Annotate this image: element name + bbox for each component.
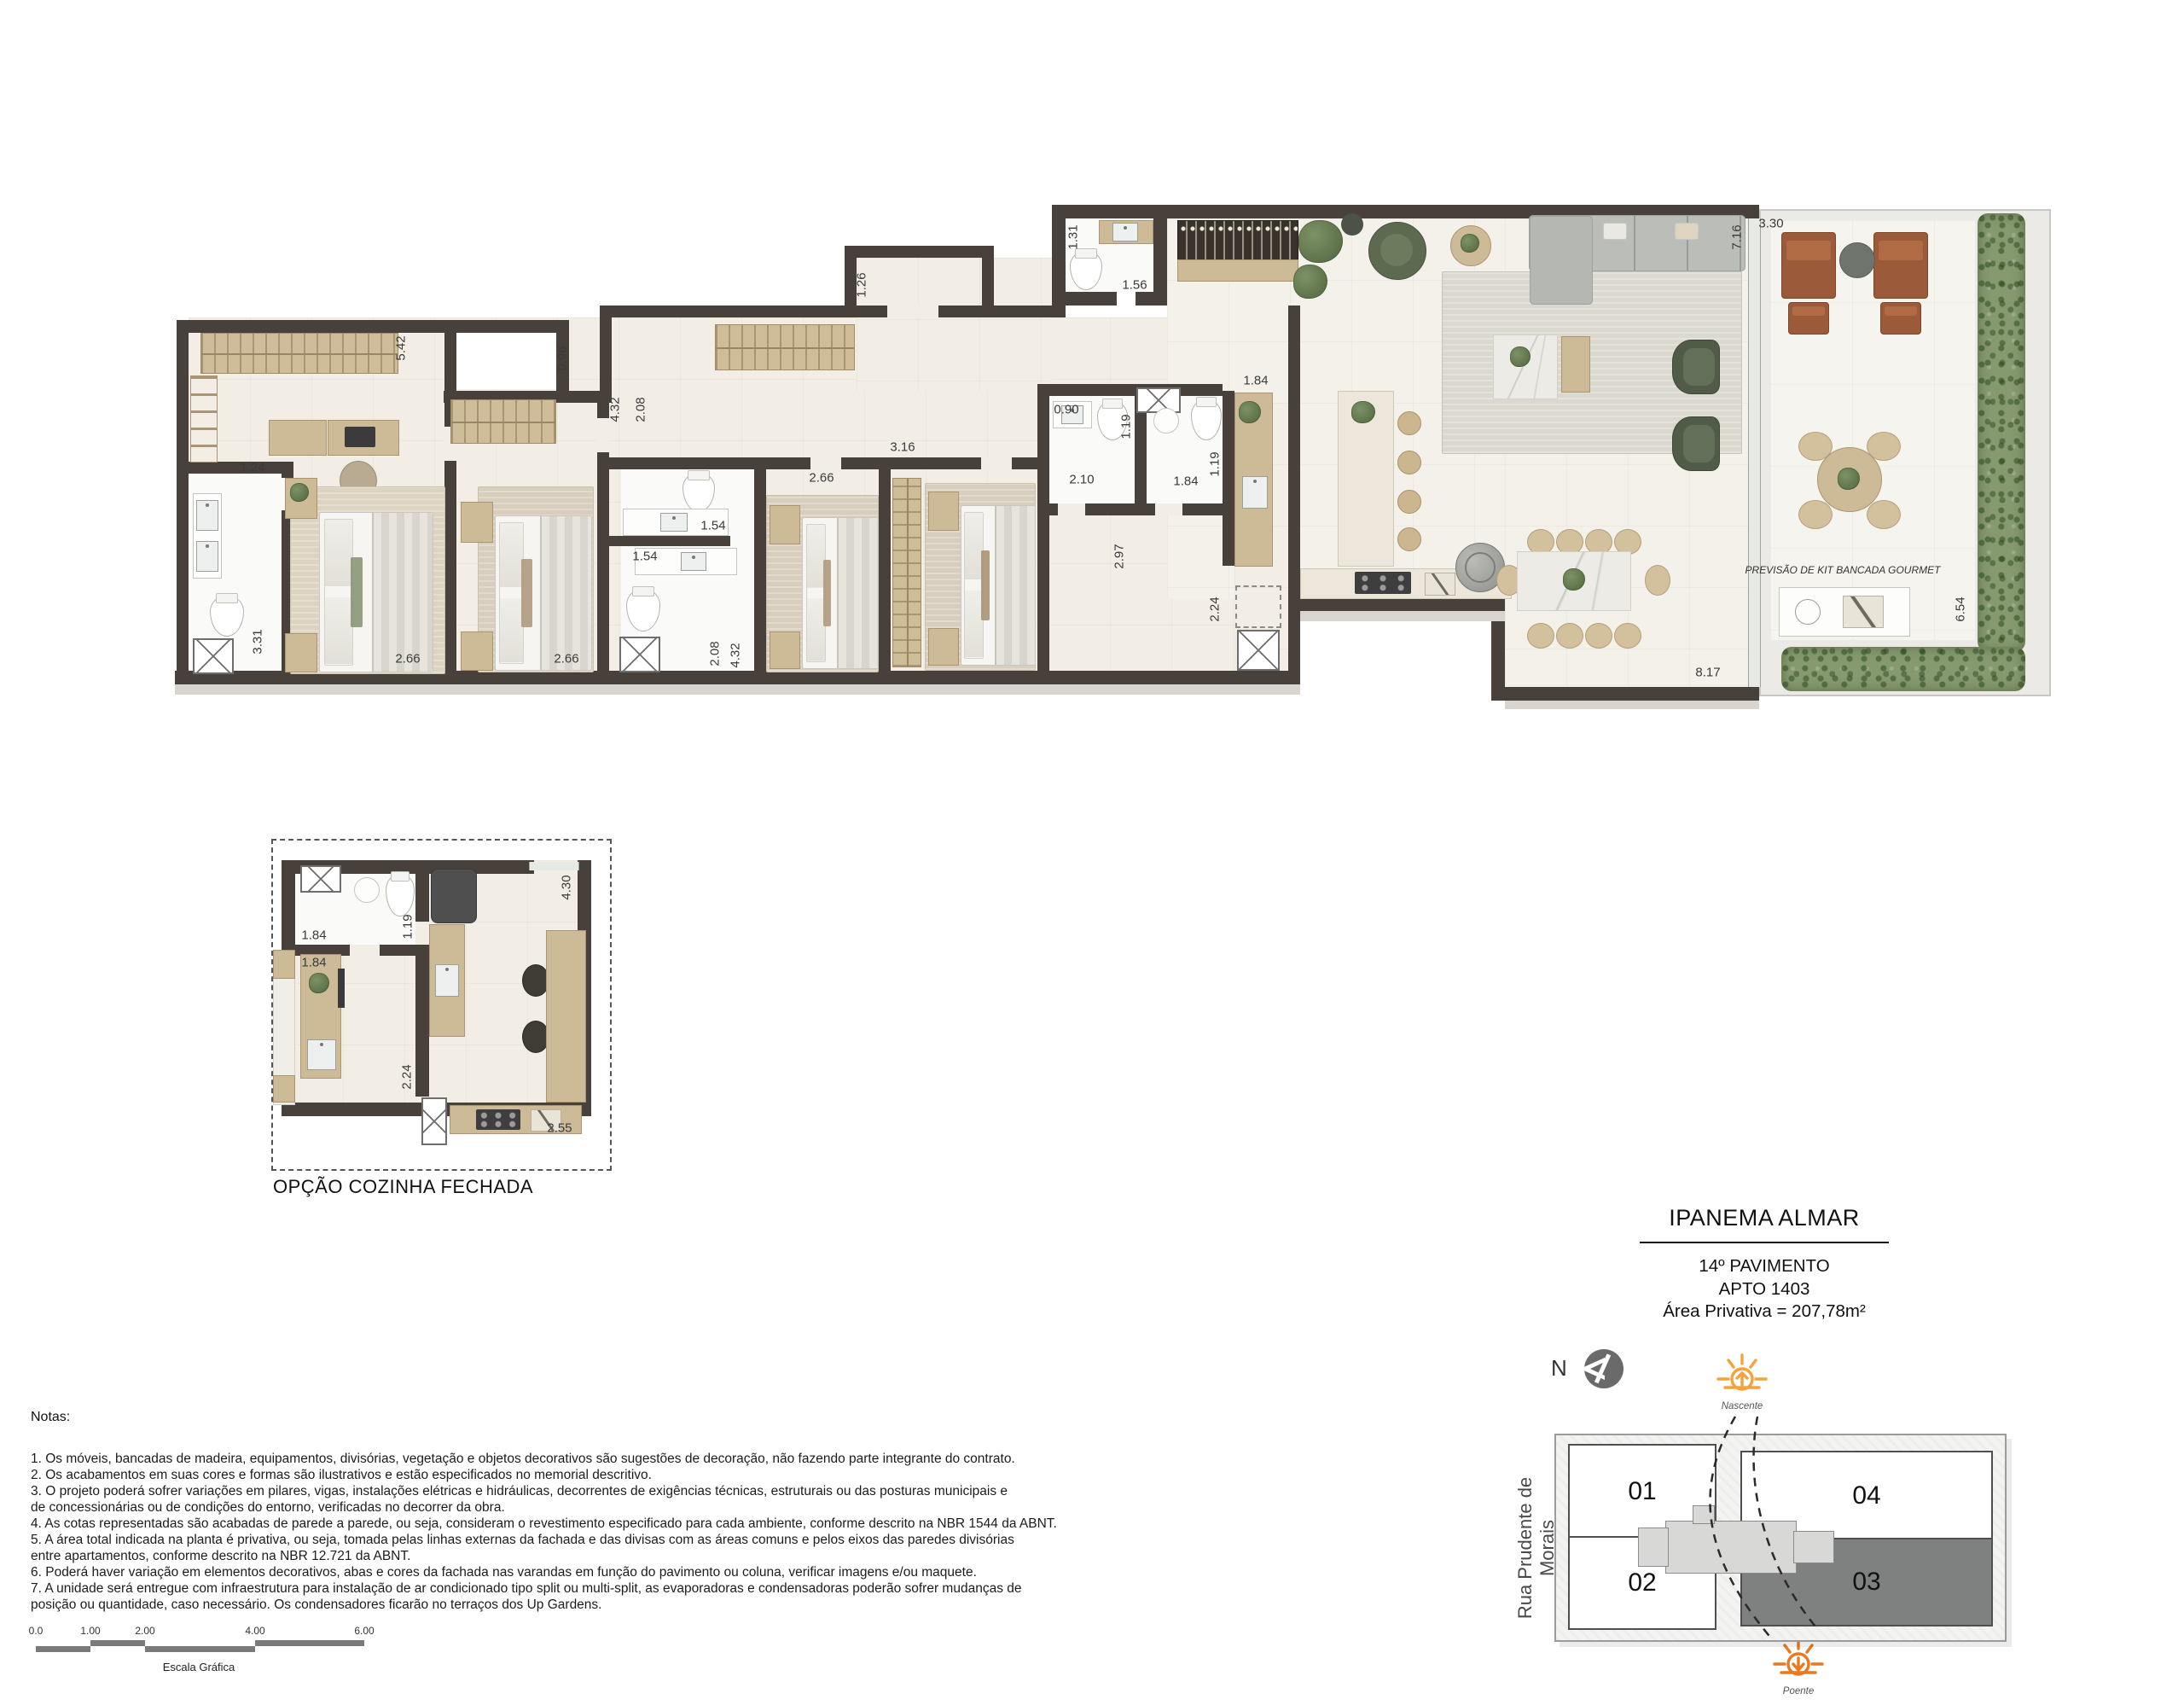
area-label: Área Privativa = 207,78m² (1594, 1301, 1935, 1324)
scale-tick-label: 2.00 (135, 1625, 154, 1637)
scale-segment (90, 1640, 145, 1646)
notes-heading: Notas: (31, 1410, 1174, 1425)
floor-label: 14º PAVIMENTO (1594, 1255, 1935, 1278)
dimension-label: 1.19 (402, 914, 415, 939)
key-plan-core (1793, 1531, 1834, 1563)
pillow-accent (351, 557, 363, 627)
pillow-accent (981, 550, 989, 620)
option-caption: OPÇÃO COZINHA FECHADA (273, 1176, 533, 1198)
dimension-label: 4.32 (729, 643, 742, 667)
key-plan-core (1638, 1528, 1669, 1567)
note-line: 4. As cotas representadas são acabadas d… (31, 1516, 1174, 1532)
notes-lines: 1. Os móveis, bancadas de madeira, equip… (31, 1451, 1174, 1613)
dimension-label: 1.84 (301, 929, 326, 942)
compass-n-label: N (1551, 1355, 1567, 1382)
dimension-label: 8.17 (1695, 666, 1720, 679)
dimension-label: 2.24 (1209, 596, 1222, 621)
dimension-label: 1.26 (856, 272, 868, 297)
dimension-label: 2.24 (401, 1064, 414, 1089)
scale-segment (36, 1646, 90, 1652)
dimension-label: 6.54 (1955, 596, 1967, 621)
note-line: 1. Os móveis, bancadas de madeira, equip… (31, 1451, 1174, 1467)
floor-plan-sheet: PREVISÃO DE KIT BANCADA GOURMET 5.420.96… (0, 0, 2184, 1705)
scale-tick-labels: 0.01.002.004.006.00 (0, 1625, 444, 1638)
scale-bar: 0.01.002.004.006.00 Escala Gráfica (0, 1620, 444, 1679)
key-plan-core (1665, 1521, 1797, 1574)
unit-number: 02 (1628, 1568, 1656, 1597)
dimension-label: 1.31 (1067, 224, 1080, 249)
note-line: de concessionárias ou de condições do en… (31, 1499, 1174, 1516)
dimension-label: 4.30 (561, 875, 573, 899)
note-line: posição ou quantidade, caso necessário. … (31, 1597, 1174, 1613)
key-plan-unit-04: 04 (1740, 1451, 1993, 1541)
project-title: IPANEMA ALMAR (1594, 1205, 1935, 1231)
sun-set-icon (1769, 1635, 1827, 1683)
note-line: 5. A área total indicada na planta é pri… (31, 1532, 1174, 1548)
dimension-label: 0.90 (1054, 404, 1078, 416)
dimension-label: 2.55 (547, 1122, 572, 1135)
street-label: Rua Prudente de Morais (1514, 1450, 1559, 1646)
sun-rise-icon (1713, 1350, 1771, 1398)
note-line: entre apartamentos, conforme descrito na… (31, 1548, 1174, 1564)
scale-segment (255, 1640, 364, 1646)
dimension-label: 2.66 (809, 472, 834, 485)
scale-tick-label: 4.00 (245, 1625, 264, 1637)
key-plan-frame (1554, 1434, 2007, 1642)
dimension-label: 1.19 (1209, 451, 1222, 476)
note-line: 2. Os acabamentos em suas cores e formas… (31, 1467, 1174, 1483)
note-line: 7. A unidade será entregue com infraestr… (31, 1580, 1174, 1597)
sun-rise-label: Nascente (1722, 1401, 1763, 1411)
note-line: 6. Poderá haver variação em elementos de… (31, 1564, 1174, 1580)
scale-segment (145, 1646, 255, 1652)
compass-icon (1578, 1347, 1628, 1391)
option-plan-closed-kitchen: 1.841.191.844.302.242.55 OPÇÃO COZINHA F… (0, 819, 665, 1212)
unit-number: 01 (1628, 1477, 1656, 1506)
dimension-label: 1.56 (1122, 279, 1147, 292)
scale-tick-label: 0.0 (29, 1625, 44, 1637)
scale-tick-label: 6.00 (354, 1625, 374, 1637)
dimension-label: 1.19 (1120, 414, 1133, 439)
compass: N (1551, 1347, 1645, 1391)
title-block: IPANEMA ALMAR 14º PAVIMENTO APTO 1403 Ár… (1594, 1205, 1935, 1324)
dimension-label: 3.30 (1758, 218, 1783, 230)
dimension-labels: 1.841.191.844.302.242.55 (0, 0, 665, 1212)
dimension-label: 2.08 (709, 641, 722, 666)
unit-number: 03 (1852, 1568, 1880, 1597)
key-plan-unit-01: 01 (1568, 1444, 1716, 1539)
pillow-accent (521, 559, 531, 626)
note-line: 3. O projeto poderá sofrer variações em … (31, 1483, 1174, 1499)
dimension-label: 1.84 (1243, 375, 1268, 387)
unit-number: 04 (1852, 1481, 1880, 1510)
key-plan-unit-02: 02 (1568, 1536, 1716, 1630)
unit-label: APTO 1403 (1594, 1278, 1935, 1301)
sun-set-label: Poente (1783, 1686, 1814, 1696)
scale-caption: Escala Gráfica (163, 1661, 235, 1673)
key-plan-core (1693, 1505, 1715, 1524)
dimension-label: 1.84 (301, 957, 326, 969)
dimension-label: 1.54 (700, 520, 725, 532)
dimension-label: 1.84 (1173, 475, 1198, 488)
dimension-label: 2.97 (1113, 544, 1126, 568)
key-plan-unit-03: 03 (1740, 1538, 1993, 1626)
scale-tick-label: 1.00 (80, 1625, 100, 1637)
title-rule (1640, 1242, 1889, 1243)
pillow-accent (823, 560, 832, 626)
dimension-label: 7.16 (1731, 224, 1744, 249)
dimension-label: 2.10 (1069, 474, 1094, 486)
dimension-label: 3.16 (890, 441, 915, 454)
notes-block: Notas: 1. Os móveis, bancadas de madeira… (31, 1410, 1174, 1613)
